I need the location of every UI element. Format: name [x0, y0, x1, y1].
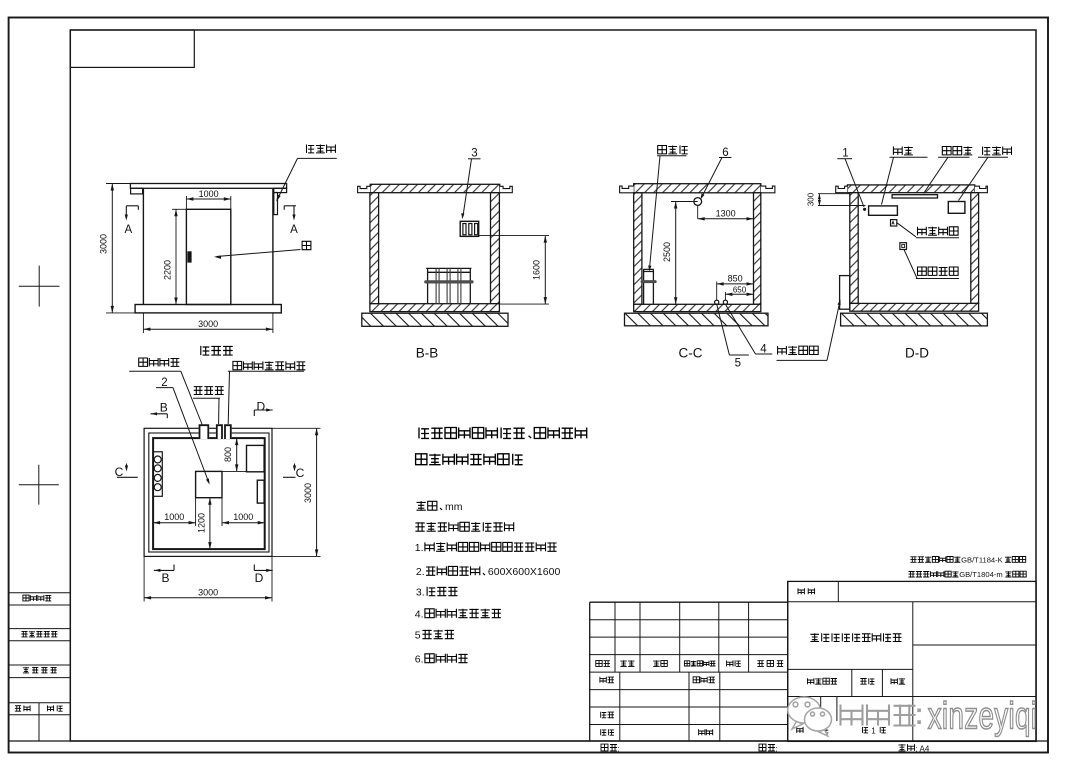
- svg-text:300: 300: [807, 192, 816, 206]
- svg-text:1200: 1200: [196, 513, 206, 533]
- svg-text:3000: 3000: [198, 587, 218, 597]
- svg-text:1300: 1300: [716, 209, 736, 219]
- svg-text:2.: 2.: [416, 566, 425, 578]
- svg-text:GB/T1804-m: GB/T1804-m: [959, 570, 1002, 579]
- svg-text:D: D: [255, 571, 264, 585]
- svg-text:B: B: [161, 571, 169, 585]
- svg-text:B: B: [160, 401, 168, 415]
- svg-text:xinzeyiqi: xinzeyiqi: [928, 695, 1038, 737]
- svg-text:3.: 3.: [416, 587, 425, 599]
- svg-text:3000: 3000: [198, 319, 218, 329]
- svg-text:D-D: D-D: [905, 346, 929, 361]
- svg-text:C: C: [296, 466, 305, 480]
- svg-text:4: 4: [760, 344, 767, 356]
- svg-text:1000: 1000: [233, 512, 253, 522]
- svg-text:5: 5: [415, 630, 421, 642]
- svg-text:5: 5: [735, 358, 741, 370]
- svg-text:3: 3: [471, 148, 477, 160]
- svg-text:2500: 2500: [662, 242, 672, 262]
- svg-text:1: 1: [842, 148, 848, 160]
- svg-text:B-B: B-B: [416, 346, 439, 361]
- svg-text:850: 850: [728, 274, 743, 284]
- svg-text:650: 650: [733, 285, 747, 294]
- svg-text:D: D: [256, 400, 265, 414]
- svg-text:2200: 2200: [163, 260, 173, 280]
- svg-text:600X600X1600: 600X600X1600: [488, 566, 561, 578]
- svg-text:A: A: [124, 224, 132, 236]
- svg-text:A: A: [290, 224, 298, 236]
- svg-text:1.: 1.: [415, 542, 424, 554]
- svg-text::: :: [618, 745, 620, 754]
- svg-text:: A4: : A4: [916, 745, 930, 754]
- svg-text:GB/T1184-K: GB/T1184-K: [961, 555, 1003, 564]
- svg-text:C-C: C-C: [679, 346, 703, 361]
- svg-text:6.: 6.: [415, 654, 424, 666]
- svg-text:1: 1: [871, 727, 876, 736]
- svg-text:1600: 1600: [532, 260, 542, 280]
- svg-text:1000: 1000: [164, 512, 184, 522]
- svg-text:1000: 1000: [199, 189, 219, 199]
- svg-text:4.: 4.: [415, 609, 424, 621]
- svg-text:mm: mm: [445, 501, 463, 513]
- svg-text:3000: 3000: [303, 483, 313, 503]
- svg-text:800: 800: [223, 447, 233, 462]
- svg-text:3000: 3000: [99, 234, 109, 254]
- svg-text::: :: [776, 745, 778, 754]
